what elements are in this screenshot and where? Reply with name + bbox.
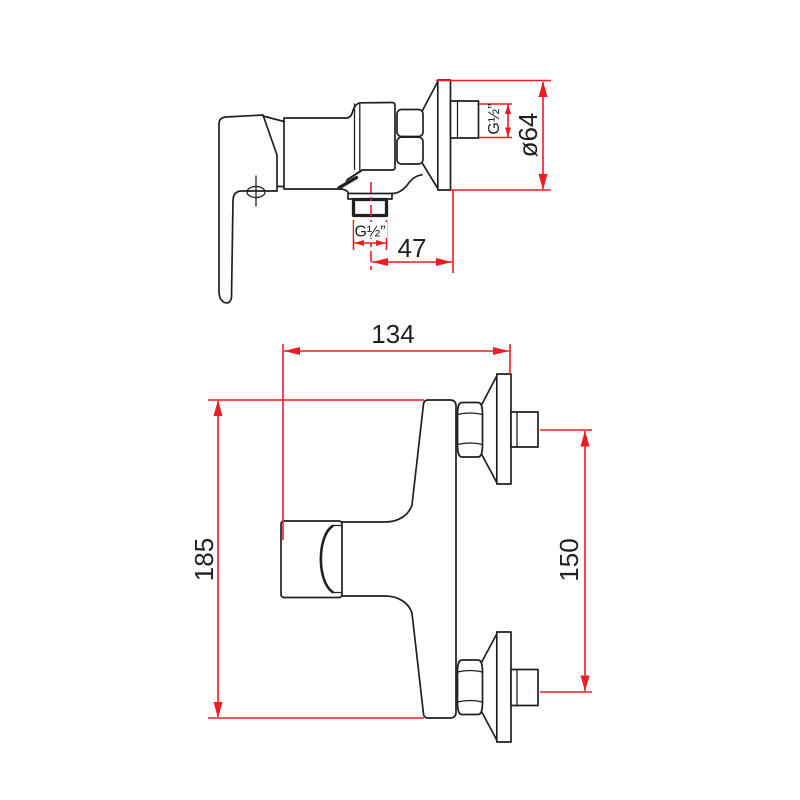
wall-flange-cone-side <box>423 82 438 189</box>
technical-drawing: ø64 G½” G½” <box>0 0 800 800</box>
drawing-canvas: ø64 G½” G½” <box>0 0 800 800</box>
mixer-body-front <box>341 400 456 718</box>
wall-flange-cone-lower <box>482 634 497 741</box>
arrowhead-up-icon <box>214 400 223 416</box>
arrowhead-up-icon <box>505 104 511 114</box>
dim-label-outlet-thread: G½” <box>354 224 385 241</box>
arrowhead-up-icon <box>581 431 590 447</box>
front-view: 134 185 150 <box>189 319 592 742</box>
handle-stem-lines <box>263 116 284 187</box>
wall-connector-lower <box>511 670 538 706</box>
dim-label-flange-diameter: ø64 <box>513 113 543 158</box>
wall-flange-cone-upper <box>482 376 497 484</box>
hex-nut-lower <box>458 660 483 715</box>
wall-connector-side <box>451 101 479 138</box>
arrowhead-up-icon <box>539 81 548 97</box>
wall-flange-plate-lower <box>497 632 511 742</box>
dim-connector-spacing: 150 <box>540 430 592 692</box>
dim-label-overall-height: 185 <box>189 538 219 581</box>
hex-nut-upper <box>458 403 483 458</box>
wall-flange-plate-side <box>438 80 451 190</box>
front-view-dimensions: 134 185 150 <box>189 319 592 718</box>
handle-lever <box>219 115 277 303</box>
lower-connection <box>458 632 539 742</box>
arrowhead-down-icon <box>505 128 511 138</box>
handle-grip-front <box>281 521 342 598</box>
faucet-side-linework <box>219 80 479 303</box>
arrowhead-left-icon <box>284 347 300 355</box>
dim-label-connector-spacing: 150 <box>554 538 584 581</box>
shower-outlet <box>348 194 392 216</box>
arrowhead-right-icon <box>436 258 452 266</box>
arrowhead-right-icon <box>376 240 386 246</box>
faucet-front-linework <box>281 374 538 742</box>
upper-connection <box>458 374 539 484</box>
arrowhead-down-icon <box>539 174 548 190</box>
wall-connector-upper <box>511 412 538 447</box>
arrowhead-down-icon <box>214 702 223 718</box>
arrowhead-left-icon <box>372 258 388 266</box>
arrowhead-left-icon <box>354 240 364 246</box>
dim-wall-connector-thread: G½” <box>479 103 512 137</box>
side-view: ø64 G½” G½” <box>219 80 551 303</box>
arrowhead-down-icon <box>581 676 590 692</box>
arrowhead-right-icon <box>493 347 509 355</box>
dim-label-wall-thread: G½” <box>486 103 503 134</box>
wall-flange-plate-upper <box>497 374 511 484</box>
dim-label-overall-width: 134 <box>371 319 414 349</box>
dim-label-outlet-to-wall: 47 <box>398 233 427 263</box>
cartridge-cap-lines <box>355 103 360 170</box>
hex-nut-side <box>397 110 423 165</box>
